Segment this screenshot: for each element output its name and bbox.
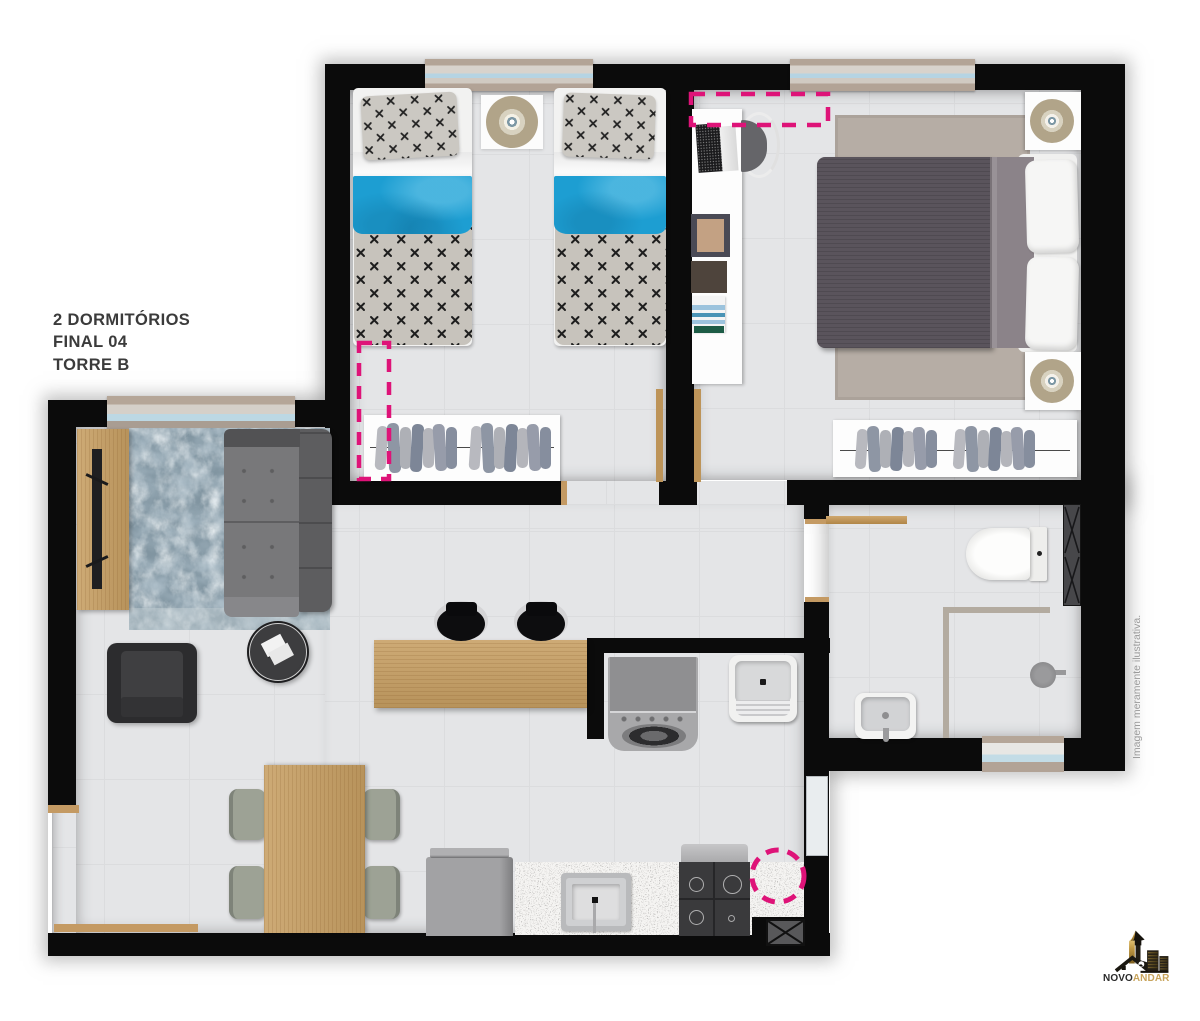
svg-text:NOVOANDAR: NOVOANDAR: [1103, 973, 1170, 984]
